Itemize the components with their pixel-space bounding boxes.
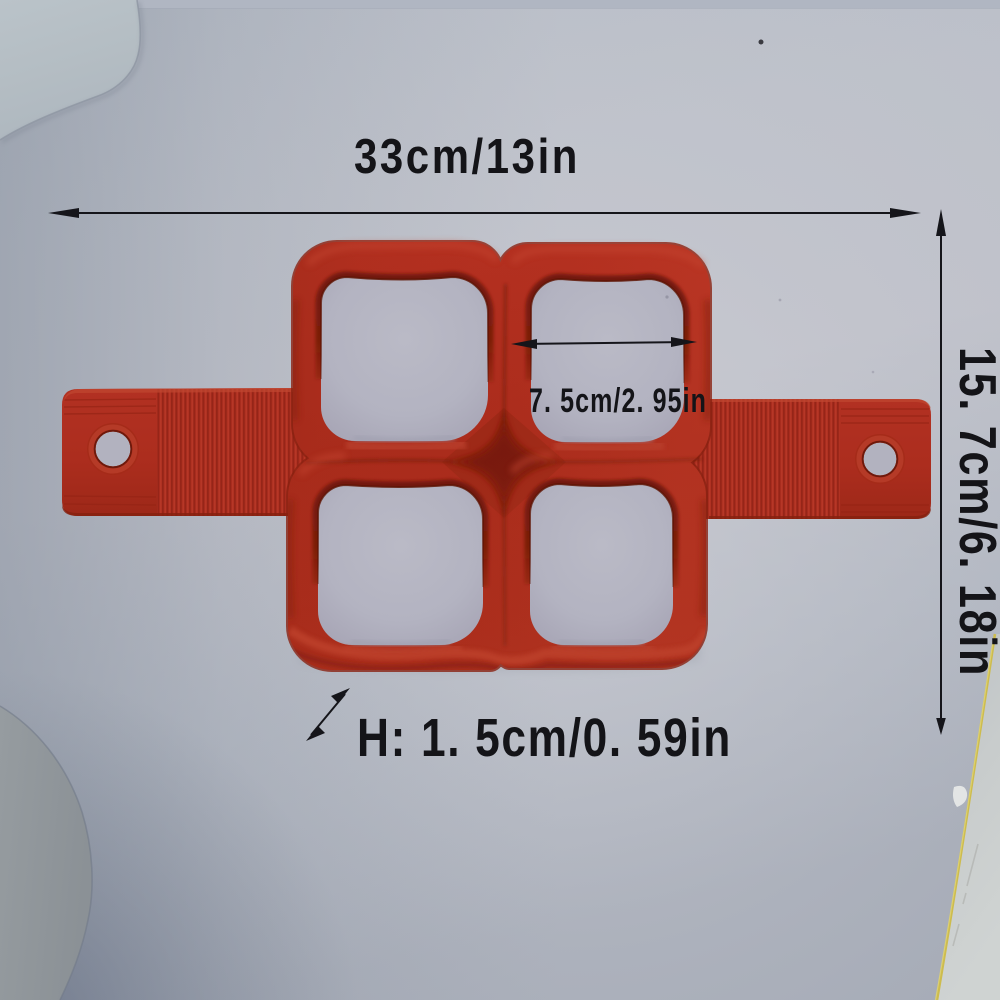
svg-text:H: 1. 5cm/0. 59in: H: 1. 5cm/0. 59in [357,708,732,768]
svg-text:15. 7cm/6. 18in: 15. 7cm/6. 18in [948,347,1000,677]
svg-text:33cm/13in: 33cm/13in [354,130,580,184]
svg-text:7. 5cm/2. 95in: 7. 5cm/2. 95in [529,382,707,420]
